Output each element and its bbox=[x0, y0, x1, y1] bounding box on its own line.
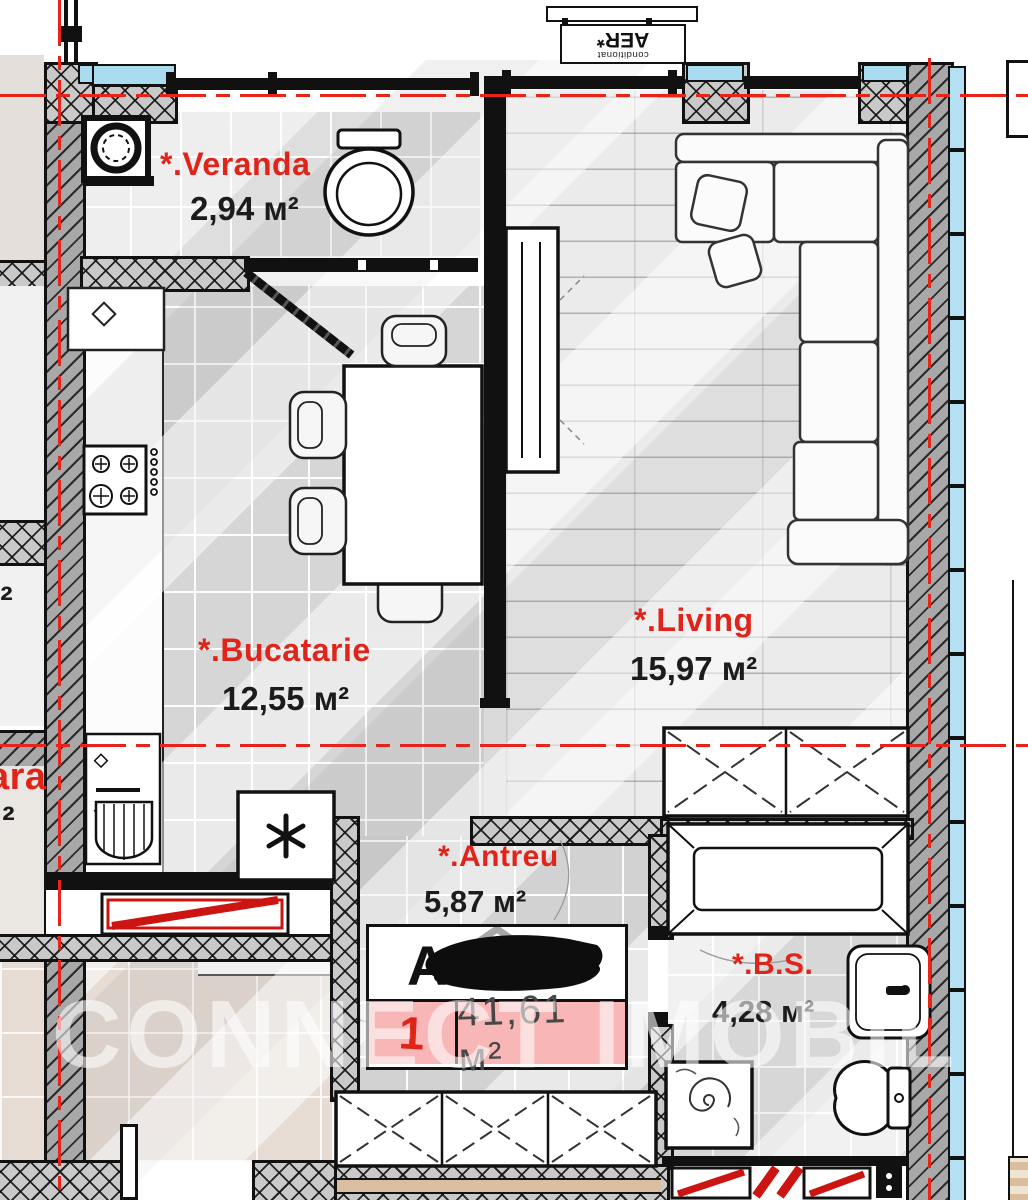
veranda-fan-unit-icon bbox=[84, 118, 154, 186]
floor-plan: conditionat AER* *.Veranda 2,94 м² *.Buc… bbox=[0, 0, 1028, 1200]
watermark-text: CONNECT IMOBIL bbox=[52, 980, 959, 1090]
toilet-icon bbox=[325, 130, 413, 235]
dining-chair-icon bbox=[290, 488, 346, 554]
balcony-divider-block bbox=[60, 26, 82, 42]
ac-unit-label: AER* bbox=[597, 29, 650, 49]
ac-unit: conditionat AER* bbox=[546, 6, 696, 62]
room-label-antreu: *.Antreu bbox=[438, 840, 559, 874]
room-area-bucatarie: 12,55 м² bbox=[222, 680, 349, 718]
tv-panel-icon bbox=[506, 228, 584, 472]
partial-area-left-top: м² bbox=[0, 580, 13, 623]
dining-chair-icon bbox=[382, 316, 446, 366]
axis-line-horizontal-mid bbox=[0, 744, 1028, 747]
wardrobe-icon bbox=[336, 1092, 656, 1166]
room-label-living: *.Living bbox=[634, 602, 754, 639]
dining-table-icon bbox=[344, 366, 482, 584]
sink-cabinet-icon bbox=[86, 734, 160, 864]
radiator-icon bbox=[102, 894, 288, 934]
room-area-antreu: 5,87 м² bbox=[424, 884, 526, 920]
partial-area-left-bottom: м² bbox=[0, 800, 15, 843]
ac-unit-bar bbox=[546, 6, 698, 22]
room-label-bs: *.B.S. bbox=[732, 948, 813, 982]
ac-unit-box: conditionat AER* bbox=[560, 24, 686, 64]
room-area-living: 15,97 м² bbox=[630, 650, 757, 688]
sofa-icon bbox=[676, 134, 908, 564]
radiator-icon bbox=[672, 1166, 902, 1198]
partial-room-name-left: ara bbox=[0, 756, 47, 799]
room-label-veranda: *.Veranda bbox=[160, 146, 310, 183]
axis-line-horizontal-top bbox=[0, 94, 1028, 97]
living-cabinet-icon bbox=[664, 728, 908, 816]
bathtub-icon bbox=[668, 824, 908, 934]
fridge-icon bbox=[238, 792, 334, 880]
kitchen-sink-icon bbox=[68, 288, 164, 350]
stove-icon bbox=[84, 446, 157, 514]
dining-chair-icon bbox=[290, 392, 346, 458]
room-area-veranda: 2,94 м² bbox=[190, 190, 299, 228]
room-label-bucatarie: *.Bucatarie bbox=[198, 632, 371, 669]
